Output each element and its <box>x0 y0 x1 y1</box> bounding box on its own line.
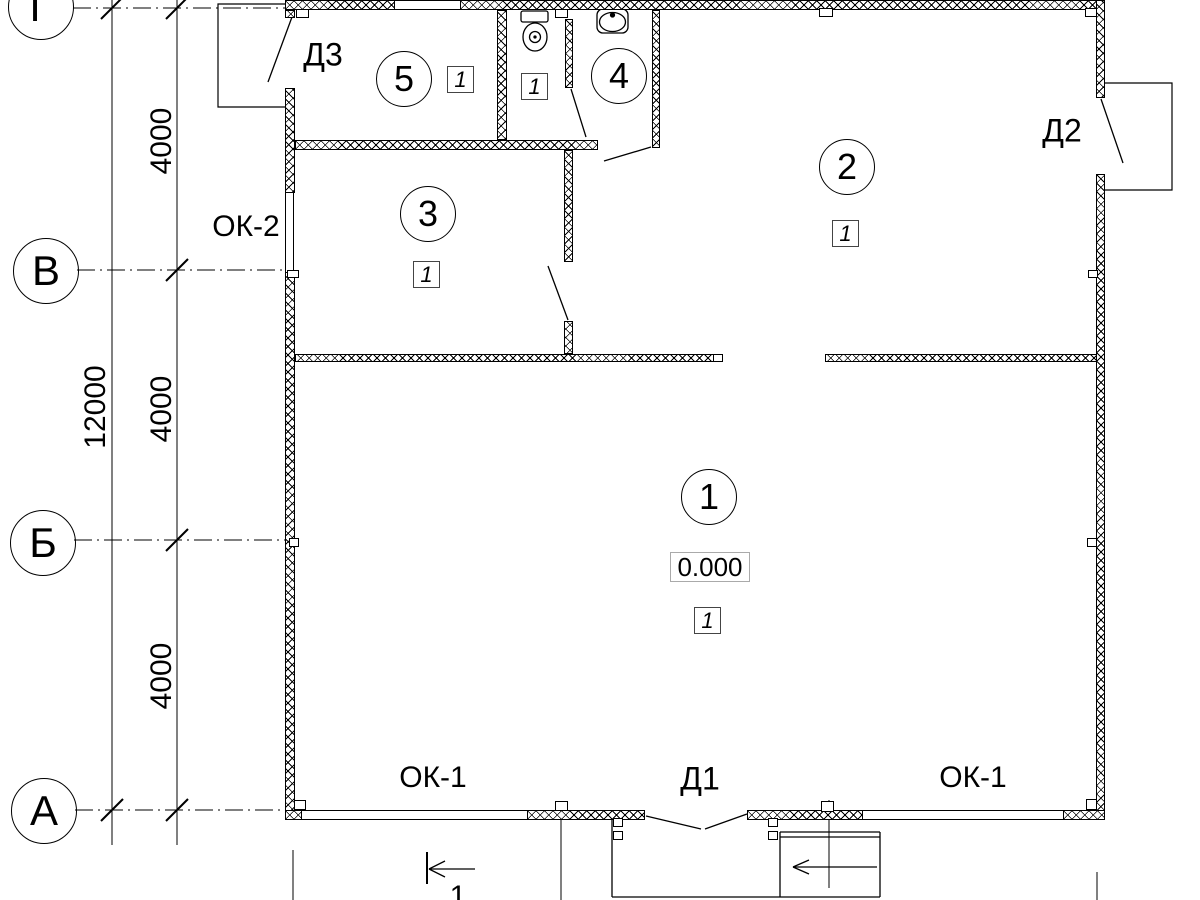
axis-tick <box>289 538 299 547</box>
axis-tick <box>287 270 299 278</box>
window-label-ok1-left: ОК-1 <box>399 761 467 795</box>
window-ok1-left <box>302 810 527 820</box>
room-circle-3: 3 <box>400 186 456 242</box>
axis-tick <box>1088 270 1098 278</box>
stair-direction-arrow <box>793 860 809 867</box>
axis-label: А <box>30 787 58 835</box>
axis-circle-v: В <box>13 238 79 304</box>
wall-wc-left <box>497 10 507 140</box>
floor-mark-wc: 1 <box>521 73 548 100</box>
axis-circle-b: Б <box>10 510 76 576</box>
wall-bottom-corner-left <box>285 810 302 820</box>
dimension-total: 12000 <box>79 365 113 448</box>
section-label: 1 <box>450 880 467 900</box>
dimension-segment: 4000 <box>145 643 179 710</box>
axis-label: В <box>32 247 60 295</box>
floor-mark-room3: 1 <box>413 261 440 288</box>
wall-left-corner <box>285 10 295 18</box>
window-label-ok2: ОК-2 <box>212 210 280 244</box>
axis-circle-a: А <box>11 778 77 844</box>
room-circle-1: 1 <box>681 469 737 525</box>
axis-tick <box>1085 8 1097 17</box>
room-number: 3 <box>418 193 438 235</box>
door-jamb-tick <box>613 831 623 840</box>
wall-bottom-mid-left <box>527 810 645 820</box>
axis-tick <box>294 800 306 810</box>
sink-icon <box>597 9 628 33</box>
room-circle-5: 5 <box>376 51 432 107</box>
wall-wc-right <box>565 19 573 88</box>
door-leaf-lines <box>268 17 1123 829</box>
axis-label: Б <box>29 519 57 567</box>
floor-mark-room5: 1 <box>447 66 474 93</box>
wall-left-upper <box>285 88 295 193</box>
axis-tick <box>821 801 834 812</box>
wall-room3-right-stub <box>564 321 573 354</box>
axis-tick <box>555 801 568 811</box>
wall-right-upper <box>1096 0 1105 98</box>
window-ok2 <box>285 193 294 272</box>
axis-tick <box>819 8 833 17</box>
wall-room3-right-upper <box>564 150 573 262</box>
floor-mark-room2: 1 <box>832 220 859 247</box>
door-jamb-tick <box>613 818 623 827</box>
axis-tick <box>1086 799 1097 810</box>
room-number: 1 <box>699 476 719 518</box>
floor-mark-room1: 1 <box>694 607 721 634</box>
room-circle-4: 4 <box>591 48 647 104</box>
wall-bottom-corner-right <box>1063 810 1105 820</box>
wall-mid-right <box>825 354 1097 362</box>
porch-stairs <box>612 820 880 897</box>
level-mark: 0.000 <box>670 552 750 582</box>
door-jamb-tick <box>768 831 778 840</box>
room-number: 2 <box>837 146 857 188</box>
wall-bottom-mid-right <box>747 810 863 820</box>
room-number: 5 <box>394 58 414 100</box>
window-label-ok1-right: ОК-1 <box>939 761 1007 795</box>
toilet-icon <box>521 11 548 51</box>
wall-room4-right <box>652 10 660 148</box>
room-circle-2: 2 <box>819 139 875 195</box>
dimension-segment: 4000 <box>145 108 179 175</box>
floor-plan: Г В Б А 12000 4000 4000 4000 5 4 3 2 1 1… <box>0 0 1200 900</box>
axis-tick <box>555 9 568 18</box>
level-value: 0.000 <box>677 552 742 583</box>
plan-linework <box>0 0 1200 900</box>
room-number: 4 <box>609 55 629 97</box>
entry-platforms <box>218 4 1172 190</box>
door-label-d1: Д1 <box>680 761 719 798</box>
axis-label: Г <box>30 0 53 31</box>
window-ok1-right <box>863 810 1063 820</box>
wall-end-cap <box>713 354 723 362</box>
wall-room5-bottom <box>295 140 598 150</box>
axis-tick <box>296 9 309 18</box>
door-label-d3: Д3 <box>303 37 342 74</box>
door-jamb-tick <box>768 818 778 827</box>
window-top <box>395 0 460 10</box>
axis-tick <box>1087 538 1097 547</box>
door-label-d2: Д2 <box>1042 113 1081 150</box>
dimension-segment: 4000 <box>145 376 179 443</box>
wall-mid-left <box>295 354 723 362</box>
